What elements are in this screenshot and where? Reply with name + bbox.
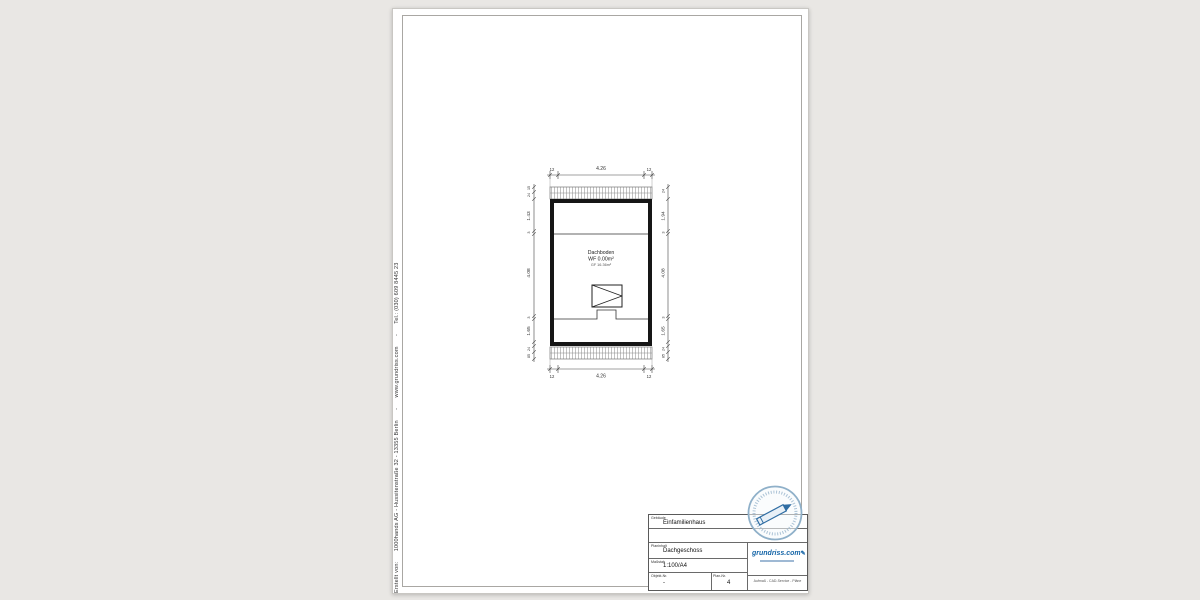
building-value: Einfamilienhaus bbox=[663, 520, 705, 526]
grundriss-logo: grundriss.com✎ bbox=[752, 550, 804, 557]
left-dimension-chain bbox=[532, 184, 536, 362]
roof-hatch-band-bottom bbox=[550, 347, 652, 359]
plan-number-label: Plan-Nr. bbox=[713, 574, 726, 578]
plan-number-cell: Plan-Nr. 4 bbox=[711, 573, 747, 590]
dim-label: 24 bbox=[662, 347, 666, 351]
logo-cell: grundriss.com✎ Aufmaß - CAD-Service - Pl… bbox=[747, 543, 807, 590]
object-number-label: Objekt-Nr. bbox=[651, 574, 667, 578]
floor-plan: 12 4.26 12 Dachboden WF bbox=[516, 156, 691, 386]
dim-label: 12 bbox=[550, 374, 555, 379]
right-dimension-chain bbox=[666, 184, 670, 362]
dim-label: 85 bbox=[527, 354, 531, 358]
dim-label: 4.08 bbox=[526, 268, 532, 278]
dim-label: 24 bbox=[662, 189, 666, 193]
dim-label: 3 bbox=[662, 316, 666, 318]
dim-label: 4.08 bbox=[661, 268, 667, 278]
dim-label: 4.26 bbox=[596, 166, 606, 172]
object-number-cell: Objekt-Nr. - bbox=[649, 573, 712, 590]
title-block-row-content: Planinhalt Dachgeschoss bbox=[649, 543, 747, 559]
dim-label: 1.94 bbox=[661, 211, 667, 221]
plan-sheet: Erstellt von: 1000hands AG - Hussitenstr… bbox=[392, 8, 809, 594]
approval-stamp-icon bbox=[743, 481, 807, 545]
dim-label: 12 bbox=[647, 167, 652, 172]
knee-wall-line-bottom bbox=[554, 310, 648, 319]
title-block-row-scale: Maßstab 1:100/A4 bbox=[649, 559, 747, 573]
logo-cell-divider bbox=[748, 575, 807, 576]
room-area-wf: WF 0.00m² bbox=[588, 257, 614, 263]
logo-tagline-line bbox=[760, 560, 794, 562]
dim-label: 24 bbox=[527, 347, 531, 351]
creator-credit-line: Erstellt von: 1000hands AG - Hussitenstr… bbox=[393, 255, 402, 593]
dim-label: 1.65 bbox=[661, 326, 667, 336]
dim-label: 1.43 bbox=[526, 211, 532, 221]
scan-background: Erstellt von: 1000hands AG - Hussitenstr… bbox=[0, 0, 1200, 600]
services-line: Aufmaß - CAD-Service - Pläne bbox=[748, 579, 807, 583]
dim-label: 85 bbox=[662, 354, 666, 358]
dim-label: 3 bbox=[662, 231, 666, 233]
room-name: Dachboden bbox=[588, 250, 615, 256]
dim-label: 3 bbox=[527, 316, 531, 318]
pencil-icon: ✎ bbox=[801, 551, 806, 557]
bottom-dimension-line bbox=[547, 359, 655, 373]
dim-label: 12 bbox=[647, 374, 652, 379]
dim-label: 3 bbox=[527, 231, 531, 233]
content-value: Dachgeschoss bbox=[663, 548, 702, 554]
top-dimension-line bbox=[547, 171, 655, 187]
dim-label: 12 bbox=[550, 167, 555, 172]
scale-value: 1:100/A4 bbox=[663, 563, 687, 569]
dim-label: 15 bbox=[527, 186, 531, 190]
room-area-gf: GF 16.36m² bbox=[591, 263, 612, 267]
roof-hatch-band-top bbox=[550, 187, 652, 199]
wall-outline bbox=[550, 199, 652, 346]
dim-label: 4.26 bbox=[596, 374, 606, 380]
dim-label: 1.65 bbox=[526, 326, 532, 336]
logo-text: grundriss.com bbox=[752, 550, 801, 557]
skylight-symbol bbox=[592, 285, 622, 307]
object-number-value: - bbox=[663, 580, 665, 586]
title-block-row-numbers: Objekt-Nr. - Plan-Nr. 4 bbox=[649, 573, 747, 590]
plan-number-value: 4 bbox=[727, 580, 730, 586]
dim-label: 24 bbox=[527, 193, 531, 197]
